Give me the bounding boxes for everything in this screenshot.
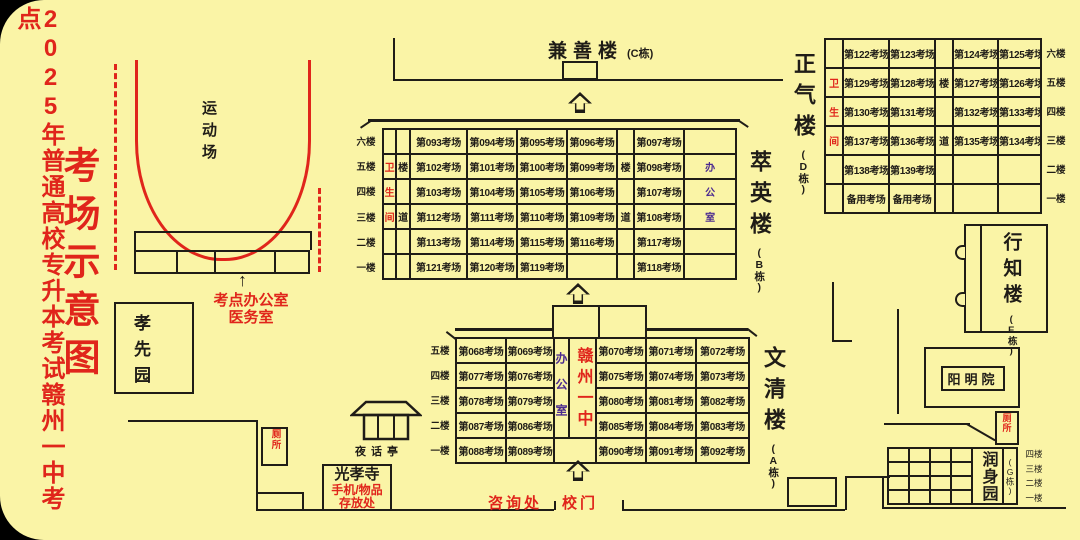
- building-e-notch: [955, 292, 965, 307]
- room-cell: 第132考场: [953, 97, 998, 126]
- xiaoxian-garden-label: 孝先园: [128, 314, 153, 392]
- room-cell: 第072考场: [696, 338, 749, 363]
- room-cell: 楼: [935, 68, 953, 97]
- room-cell: 第081考场: [646, 388, 696, 413]
- room-cell: 第131考场: [889, 97, 935, 126]
- up-arrow-icon: ↑: [238, 270, 247, 291]
- floor-label: 五楼: [427, 337, 453, 362]
- floor-label: 三楼: [352, 204, 380, 229]
- empty-cell: [935, 155, 953, 184]
- empty-cell: [825, 155, 843, 184]
- gate-label: 校门: [562, 492, 598, 513]
- wall: [884, 423, 970, 425]
- strip-room: [176, 250, 216, 274]
- wall: [128, 420, 258, 422]
- room-cell: 第129考场: [843, 68, 889, 97]
- building-d-label: 正气楼 (D栋): [785, 52, 821, 196]
- wall: [897, 309, 899, 414]
- empty-cell: [951, 490, 972, 504]
- room-cell: 第104考场: [467, 179, 517, 204]
- room-cell: 第120考场: [467, 254, 517, 279]
- wall: [966, 423, 996, 441]
- building-e-divider: [980, 224, 982, 333]
- room-cell: 楼: [617, 154, 634, 179]
- empty-cell: [888, 490, 909, 504]
- building-a-name: 文清楼: [762, 346, 784, 439]
- room-cell: 室: [684, 204, 736, 229]
- empty-cell: [617, 179, 634, 204]
- up-arrow-icon: [568, 92, 592, 113]
- room-cell: 第133考场: [998, 97, 1041, 126]
- room-cell: 第083考场: [696, 413, 749, 438]
- room-cell: 第116考场: [567, 229, 617, 254]
- office-strip-wall: [310, 231, 312, 250]
- building-d-tag: (D栋): [798, 149, 809, 196]
- floor-label: 一楼: [1022, 491, 1046, 506]
- floor-label: 二楼: [427, 412, 453, 437]
- boundary-dashed-line-left: [114, 64, 117, 270]
- floor-label: 二楼: [1043, 154, 1069, 183]
- building-e-label: 行知楼 (E栋): [996, 232, 1026, 357]
- empty-cell: [888, 448, 909, 462]
- building-c-door: [562, 61, 598, 80]
- building-d-rooms: 第122考场第123考场第124考场第125考场卫第129考场第128考场楼第1…: [824, 38, 1042, 214]
- toilet-label: 厕所: [1001, 413, 1014, 433]
- room-cell: 第089考场: [506, 438, 554, 463]
- temple-name: 光孝寺: [324, 467, 390, 484]
- floor-label: 二楼: [352, 229, 380, 254]
- floor-label: 五楼: [1043, 67, 1069, 96]
- empty-cell: [930, 490, 951, 504]
- building-d-name: 正气楼: [792, 52, 814, 145]
- empty-cell: [617, 229, 634, 254]
- room-cell: 第068考场: [456, 338, 506, 363]
- room-cell: 第073考场: [696, 363, 749, 388]
- room-cell: 第085考场: [596, 413, 646, 438]
- map-subtitle: 考场示意图: [60, 146, 97, 402]
- empty-cell: [951, 448, 972, 462]
- room-cell: 第086考场: [506, 413, 554, 438]
- room-cell: 第101考场: [467, 154, 517, 179]
- boundary-dashed-line-right: [318, 188, 321, 272]
- toilet-east: 厕所: [995, 411, 1019, 445]
- floor-label: 四楼: [352, 179, 380, 204]
- building-a-floors: 五楼四楼三楼二楼一楼: [427, 337, 453, 462]
- empty-cell: [684, 129, 736, 154]
- toilet-west: 厕所: [261, 427, 288, 466]
- empty-cell: [953, 184, 998, 213]
- room-cell: 润身园: [972, 448, 1003, 504]
- building-b-roof-edge: [737, 119, 749, 128]
- room-cell: 第114考场: [467, 229, 517, 254]
- room-cell: 办: [684, 154, 736, 179]
- exam-site-map: 2025年普通高校专升本考试赣州一中考点 考场示意图 运动场 ↑ 考点办公室 医…: [0, 0, 1080, 540]
- building-b-label: 萃英楼 (B栋): [742, 150, 776, 294]
- empty-cell: [684, 254, 736, 279]
- room-cell: 第108考场: [634, 204, 684, 229]
- room-cell: 第091考场: [646, 438, 696, 463]
- room-cell: 楼: [396, 154, 410, 179]
- temple-deposit: 光孝寺 手机/物品 存放处: [322, 464, 392, 511]
- room-cell: 第069考场: [506, 338, 554, 363]
- floor-label: 三楼: [427, 387, 453, 412]
- room-cell: 赣州一中: [569, 338, 596, 438]
- room-cell: 卫: [825, 68, 843, 97]
- yangming-yard: 阳明院: [924, 347, 1020, 408]
- room-cell: 第107考场: [634, 179, 684, 204]
- strip-room: [274, 250, 310, 274]
- room-cell: 第100考场: [517, 154, 567, 179]
- room-cell: 第136考场: [889, 126, 935, 155]
- up-arrow-icon: [566, 283, 590, 304]
- room-cell: 第084考场: [646, 413, 696, 438]
- toilet-label: 厕所: [268, 429, 282, 450]
- room-cell: 第098考场: [634, 154, 684, 179]
- empty-cell: [930, 448, 951, 462]
- office-strip-roofline: [134, 231, 312, 233]
- building-c-name: 兼善楼: [548, 36, 623, 63]
- floor-label: 一楼: [427, 437, 453, 462]
- room-cell: 办公室: [554, 338, 569, 438]
- room-cell: 第074考场: [646, 363, 696, 388]
- deposit-note2: 存放处: [324, 497, 390, 510]
- room-cell: 第092考场: [696, 438, 749, 463]
- building-a-rooms: 第068考场第069考场办公室赣州一中第070考场第071考场第072考场第07…: [455, 337, 750, 464]
- building-a-roof-edge: [747, 328, 758, 337]
- playground-label: 运动场: [198, 100, 219, 166]
- empty-cell: [998, 155, 1041, 184]
- empty-cell: [825, 184, 843, 213]
- empty-cell: [909, 448, 930, 462]
- page-title: 2025年普通高校专升本考试赣州一中考点: [14, 6, 62, 534]
- room-cell: 第118考场: [634, 254, 684, 279]
- floor-label: 四楼: [1043, 96, 1069, 125]
- wall: [882, 476, 884, 509]
- room-cell: 第138考场: [843, 155, 889, 184]
- room-cell: 生: [825, 97, 843, 126]
- building-a-label: 文清楼 (A栋): [756, 346, 790, 490]
- floor-label: 四楼: [427, 362, 453, 387]
- room-cell: 第090考场: [596, 438, 646, 463]
- room-cell: 第078考场: [456, 388, 506, 413]
- room-cell: 第127考场: [953, 68, 998, 97]
- room-cell: 道: [935, 126, 953, 155]
- wall: [832, 282, 834, 342]
- room-cell: 第103考场: [410, 179, 467, 204]
- room-cell: 第115考场: [517, 229, 567, 254]
- room-cell: 第124考场: [953, 39, 998, 68]
- empty-cell: [951, 462, 972, 476]
- room-cell: 第099考场: [567, 154, 617, 179]
- room-cell: 第134考场: [998, 126, 1041, 155]
- room-cell: 第130考场: [843, 97, 889, 126]
- room-cell: 第094考场: [467, 129, 517, 154]
- room-cell: 生: [383, 179, 396, 204]
- wall: [832, 340, 852, 342]
- room-cell: 第102考场: [410, 154, 467, 179]
- floor-label: 一楼: [1043, 183, 1069, 212]
- floor-label: 三楼: [1022, 462, 1046, 477]
- room-cell: 间: [825, 126, 843, 155]
- building-g-rooms: 润身园(G栋): [887, 447, 1018, 505]
- room-cell: 第121考场: [410, 254, 467, 279]
- office-strip-rooms: [134, 250, 312, 274]
- floor-label: 六楼: [1043, 38, 1069, 67]
- building-a-roof-center-divider: [598, 305, 600, 339]
- empty-cell: [567, 254, 617, 279]
- room-cell: 第075考场: [596, 363, 646, 388]
- room-cell: 第077考场: [456, 363, 506, 388]
- building-e-name: 行知楼: [1002, 232, 1021, 310]
- room-cell: 第076考场: [506, 363, 554, 388]
- empty-cell: [909, 476, 930, 490]
- building-b-floors: 六楼五楼四楼三楼二楼一楼: [352, 128, 380, 280]
- room-cell: 第122考场: [843, 39, 889, 68]
- empty-cell: [935, 97, 953, 126]
- room-cell: 第123考场: [889, 39, 935, 68]
- room-cell: 第125考场: [998, 39, 1041, 68]
- empty-cell: [825, 39, 843, 68]
- building-g-floors: 四楼三楼二楼一楼: [1022, 447, 1046, 505]
- room-cell: 第079考场: [506, 388, 554, 413]
- xiaoxian-garden: 孝先园: [114, 302, 194, 394]
- room-cell: 第071考场: [646, 338, 696, 363]
- empty-cell: [935, 184, 953, 213]
- room-cell: 第135考场: [953, 126, 998, 155]
- floor-label: 五楼: [352, 153, 380, 178]
- floor-label: 六楼: [352, 128, 380, 153]
- room-cell: (G栋): [1003, 448, 1017, 504]
- building-e-notch: [955, 245, 965, 260]
- room-cell: 第070考场: [596, 338, 646, 363]
- building-b-name: 萃英楼: [748, 150, 770, 243]
- floor-label: 三楼: [1043, 125, 1069, 154]
- consult-label: 咨询处: [488, 492, 542, 513]
- room-cell: 第111考场: [467, 204, 517, 229]
- empty-cell: [396, 254, 410, 279]
- room-cell: 间: [383, 204, 396, 229]
- empty-cell: [383, 229, 396, 254]
- empty-cell: [396, 229, 410, 254]
- room-cell: 第139考场: [889, 155, 935, 184]
- room-cell: 第088考场: [456, 438, 506, 463]
- room-cell: 第082考场: [696, 388, 749, 413]
- building-a-roof: [646, 328, 748, 331]
- empty-cell: [888, 462, 909, 476]
- room-cell: 道: [396, 204, 410, 229]
- room-cell: 第128考场: [889, 68, 935, 97]
- empty-cell: [909, 462, 930, 476]
- room-cell: 第113考场: [410, 229, 467, 254]
- site-office-line2: 医务室: [178, 309, 324, 326]
- empty-cell: [396, 179, 410, 204]
- room-cell: 卫: [383, 154, 396, 179]
- wall: [256, 420, 258, 494]
- floor-label: 二楼: [1022, 476, 1046, 491]
- empty-cell: [909, 490, 930, 504]
- room-cell: 道: [617, 204, 634, 229]
- empty-cell: [888, 476, 909, 490]
- room-cell: 第126考场: [998, 68, 1041, 97]
- floor-label: 四楼: [1022, 447, 1046, 462]
- room-cell: 第096考场: [567, 129, 617, 154]
- small-building: [787, 477, 837, 507]
- building-c-tag: (C栋): [627, 45, 653, 61]
- building-d-floors: 六楼五楼四楼三楼二楼一楼: [1043, 38, 1069, 212]
- room-cell: 第105考场: [517, 179, 567, 204]
- building-b-rooms: 第093考场第094考场第095考场第096考场第097考场卫楼第102考场第1…: [382, 128, 737, 280]
- empty-cell: [930, 462, 951, 476]
- deposit-note1: 手机/物品: [324, 484, 390, 497]
- room-cell: 第109考场: [567, 204, 617, 229]
- empty-cell: [935, 39, 953, 68]
- empty-cell: [930, 476, 951, 490]
- room-cell: 第117考场: [634, 229, 684, 254]
- pavilion-label: 夜话亭: [355, 443, 403, 459]
- building-b-tag: (B栋): [754, 247, 765, 294]
- room-cell: 公: [684, 179, 736, 204]
- strip-room: [134, 250, 178, 274]
- room-cell: 第093考场: [410, 129, 467, 154]
- floor-label: 一楼: [352, 255, 380, 280]
- empty-cell: [951, 476, 972, 490]
- empty-cell: [998, 184, 1041, 213]
- site-office-line1: 考点办公室: [178, 292, 324, 309]
- empty-cell: [396, 129, 410, 154]
- pavilion-icon: [350, 400, 422, 442]
- yangming-label: 阳明院: [941, 366, 1005, 391]
- empty-cell: [684, 229, 736, 254]
- building-b-roof: [368, 119, 740, 122]
- room-cell: 第112考场: [410, 204, 467, 229]
- empty-cell: [554, 438, 596, 463]
- empty-cell: [617, 254, 634, 279]
- wall: [882, 507, 1066, 509]
- empty-cell: [617, 129, 634, 154]
- building-c-wall: [393, 38, 395, 80]
- building-a-roof: [455, 328, 553, 331]
- room-cell: 第110考场: [517, 204, 567, 229]
- room-cell: 第095考场: [517, 129, 567, 154]
- office-strip-wall: [134, 231, 136, 250]
- empty-cell: [383, 129, 396, 154]
- south-wall-right: [622, 509, 845, 511]
- building-a-tag: (A栋): [768, 443, 779, 490]
- room-cell: 第087考场: [456, 413, 506, 438]
- wall: [845, 477, 847, 510]
- room-cell: 备用考场: [889, 184, 935, 213]
- building-c-label: 兼善楼 (C栋): [548, 36, 653, 63]
- empty-cell: [383, 254, 396, 279]
- room-cell: 第106考场: [567, 179, 617, 204]
- room-cell: 第119考场: [517, 254, 567, 279]
- room-cell: 备用考场: [843, 184, 889, 213]
- site-office-label: 考点办公室 医务室: [178, 292, 324, 327]
- wall-end: [554, 501, 556, 510]
- room-cell: 第097考场: [634, 129, 684, 154]
- room-cell: 第080考场: [596, 388, 646, 413]
- empty-cell: [953, 155, 998, 184]
- room-cell: 第137考场: [843, 126, 889, 155]
